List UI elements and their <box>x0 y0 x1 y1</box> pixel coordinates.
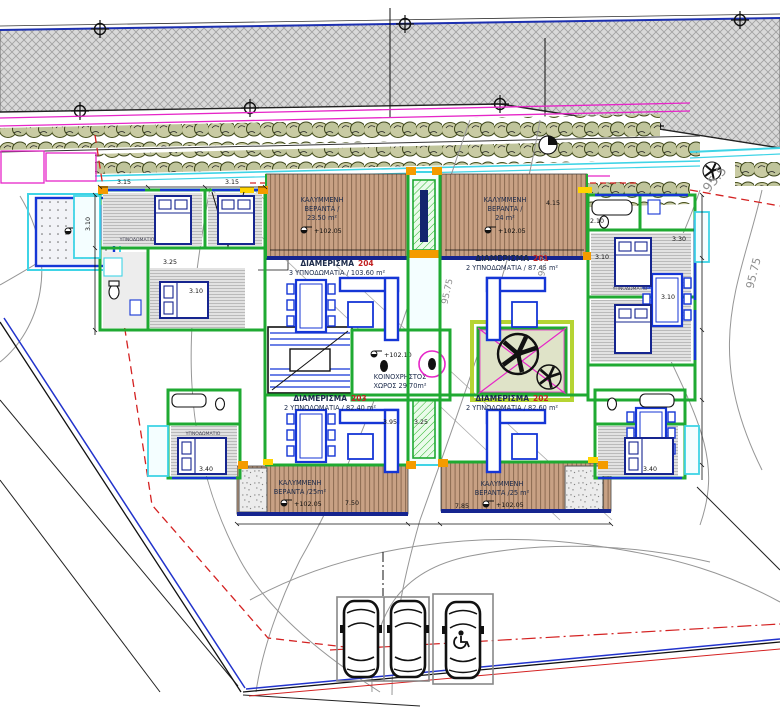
svg-text:ΚΑΛΥΜΜΕΝΗ: ΚΑΛΥΜΜΕΝΗ <box>481 480 524 488</box>
svg-text:+102.05: +102.05 <box>314 227 342 235</box>
svg-text:4.15: 4.15 <box>546 200 560 207</box>
planter <box>565 466 603 510</box>
svg-text:3.40: 3.40 <box>199 466 213 473</box>
svg-text:3.25: 3.25 <box>414 419 428 426</box>
svg-text:ΒΕΡΑΝΤΑ /25 m²: ΒΕΡΑΝΤΑ /25 m² <box>475 489 530 497</box>
svg-text:ΚΑΛΥΜΜΕΝΗ: ΚΑΛΥΜΜΕΝΗ <box>279 479 322 487</box>
apartment-204-details: 3 ΥΠΝΟΔΩΜΑΤΙΑ / 103.60 m² <box>289 269 386 277</box>
bed <box>615 305 651 353</box>
svg-text:ΒΕΡΑΝΤΑ /: ΒΕΡΑΝΤΑ / <box>305 205 341 213</box>
dining-table <box>287 280 335 332</box>
contour-label: 95.75 <box>743 256 763 290</box>
apartment-202-details: 2 ΥΠΝΟΔΩΜΑΤΙΑ / 82.60 m² <box>466 404 558 412</box>
car-icon <box>442 602 484 678</box>
common-area-label-1: ΚΟΙΝΟΧΡΗΣΤΟΣ <box>374 373 427 381</box>
svg-text:3.95: 3.95 <box>383 419 397 426</box>
svg-text:3.40: 3.40 <box>643 466 657 473</box>
fence-panel <box>46 153 96 181</box>
svg-text:3.15: 3.15 <box>117 179 131 186</box>
svg-text:3.10: 3.10 <box>85 217 92 231</box>
bed <box>615 238 651 286</box>
dining-table <box>287 410 335 462</box>
svg-text:3.10: 3.10 <box>595 254 609 261</box>
apartment-202-label: ΔΙΑΜΕΡΙΣΜΑ202 <box>475 394 548 403</box>
svg-text:3.30: 3.30 <box>672 236 686 243</box>
fence-panel <box>1 151 44 183</box>
contour-label: 95.5 <box>700 164 730 196</box>
svg-text:3.25: 3.25 <box>163 259 177 266</box>
svg-text:7.50: 7.50 <box>345 500 359 507</box>
apartment-204-label: ΔΙΑΜΕΡΙΣΜΑ204 <box>300 259 373 268</box>
apartment-201-label: ΔΙΑΜΕΡΙΣΜΑ201 <box>475 254 548 263</box>
bed <box>218 196 254 244</box>
common-area: +102.10 ΚΟΙΝΟΧΡΗΣΤΟΣ ΧΩΡΟΣ 29.70m² <box>352 330 450 400</box>
apartment-203-details: 2 ΥΠΝΟΔΩΜΑΤΙΑ / 82.40 m² <box>284 404 376 412</box>
floor-plan-drawing: +90.45 +102.10 ΚΟΙΝΟΧΡΗΣΤΟΣ ΧΩΡΟΣ 29.70 <box>0 0 780 709</box>
veranda-bottom-right-label: ΚΑΛΥΜΜΕΝΗ ΒΕΡΑΝΤΑ /25 m² +102.05 <box>475 480 530 509</box>
bedroom-label: ΥΠΝΟΔΩΜΑΤΙΟ <box>612 286 648 292</box>
common-area-label-2: ΧΩΡΟΣ 29.70m² <box>374 382 427 390</box>
car-icon <box>387 601 429 677</box>
svg-text:ΚΑΛΥΜΜΕΝΗ: ΚΑΛΥΜΜΕΝΗ <box>484 196 527 204</box>
svg-text:24 m²: 24 m² <box>495 214 515 222</box>
staircase <box>268 327 352 393</box>
svg-text:ΒΕΡΑΝΤΑ /: ΒΕΡΑΝΤΑ / <box>488 205 524 213</box>
planter <box>239 468 267 512</box>
svg-text:+102.05: +102.05 <box>496 501 524 509</box>
svg-text:3.15: 3.15 <box>225 179 239 186</box>
apartment-203-label: ΔΙΑΜΕΡΙΣΜΑ203 <box>293 394 366 403</box>
contour-label: 95.75 <box>440 278 455 305</box>
svg-text:+102.05: +102.05 <box>294 500 322 508</box>
svg-text:23.50 m²: 23.50 m² <box>307 214 337 222</box>
svg-text:ΒΕΡΑΝΤΑ /25m²: ΒΕΡΑΝΤΑ /25m² <box>274 488 327 496</box>
svg-text:7.85: 7.85 <box>455 503 469 510</box>
veranda-top-left-label: ΚΑΛΥΜΜΕΝΗ ΒΕΡΑΝΤΑ / 23.50 m² +102.05 <box>301 196 344 235</box>
car-icon <box>340 601 382 677</box>
svg-text:2.10: 2.10 <box>590 218 604 225</box>
svg-text:ΚΑΛΥΜΜΕΝΗ: ΚΑΛΥΜΜΕΝΗ <box>301 196 344 204</box>
svg-text:3.10: 3.10 <box>189 288 203 295</box>
bedroom-label: ΥΠΝΟΔΩΜΑΤΙΟ <box>185 431 221 437</box>
svg-text:+102.05: +102.05 <box>498 227 526 235</box>
veranda-bottom-left-label: ΚΑΛΥΜΜΕΝΗ ΒΕΡΑΝΤΑ /25m² +102.05 <box>274 479 327 508</box>
bed <box>155 196 191 244</box>
bedroom-label: ΥΠΝΟΔΩΜΑΤΙΟ <box>119 237 155 243</box>
svg-text:3.10: 3.10 <box>661 294 675 301</box>
parking-area <box>337 552 493 684</box>
hedge-row-icon <box>735 162 780 186</box>
